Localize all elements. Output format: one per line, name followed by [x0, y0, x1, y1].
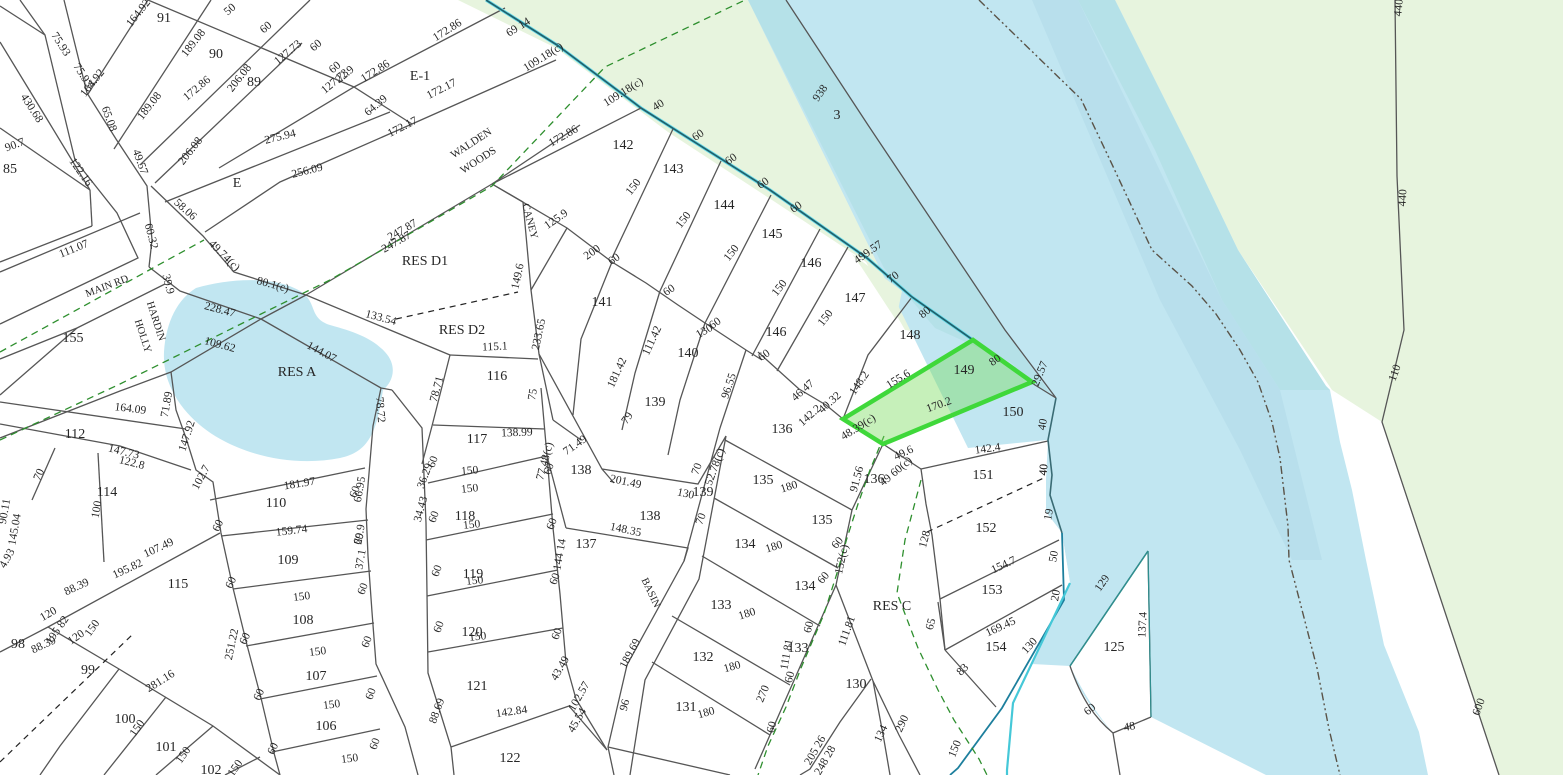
svg-text:139: 139	[693, 485, 714, 500]
svg-text:140: 140	[678, 346, 699, 361]
svg-text:155: 155	[63, 331, 84, 346]
svg-text:146: 146	[801, 256, 822, 271]
svg-text:150: 150	[322, 698, 341, 712]
svg-text:142: 142	[613, 138, 634, 153]
svg-text:149: 149	[954, 363, 975, 378]
svg-text:125: 125	[1104, 640, 1125, 655]
svg-text:139: 139	[645, 395, 666, 410]
svg-text:130: 130	[846, 677, 867, 692]
svg-text:40: 40	[1038, 463, 1051, 476]
svg-text:101: 101	[156, 740, 177, 755]
svg-text:115: 115	[168, 577, 188, 592]
svg-text:131: 131	[676, 700, 697, 715]
svg-text:133: 133	[711, 598, 732, 613]
svg-text:141: 141	[592, 295, 613, 310]
svg-text:50: 50	[1047, 550, 1061, 564]
svg-text:116: 116	[487, 369, 507, 384]
svg-text:150: 150	[292, 590, 311, 604]
svg-text:19: 19	[1042, 508, 1056, 522]
svg-text:138: 138	[571, 463, 592, 478]
svg-text:RES D2: RES D2	[439, 323, 485, 338]
svg-text:20: 20	[1049, 589, 1063, 603]
svg-text:145: 145	[762, 227, 783, 242]
svg-text:98: 98	[11, 637, 25, 652]
svg-text:150: 150	[465, 574, 484, 588]
svg-text:150: 150	[308, 645, 327, 659]
svg-text:138.99: 138.99	[501, 426, 533, 439]
svg-text:153: 153	[982, 583, 1003, 598]
svg-text:150: 150	[340, 752, 359, 766]
svg-text:40: 40	[1036, 418, 1050, 432]
svg-text:114: 114	[97, 485, 117, 500]
svg-text:121: 121	[467, 679, 488, 694]
svg-text:106: 106	[316, 719, 337, 734]
svg-text:91: 91	[157, 11, 171, 26]
svg-text:150: 150	[461, 464, 479, 477]
svg-text:102: 102	[201, 763, 222, 775]
svg-text:99: 99	[81, 663, 95, 678]
svg-text:135: 135	[753, 473, 774, 488]
svg-text:146: 146	[766, 325, 787, 340]
svg-text:154: 154	[986, 640, 1007, 655]
svg-text:RES C: RES C	[873, 599, 912, 614]
svg-text:107: 107	[306, 669, 327, 684]
svg-text:117: 117	[467, 432, 487, 447]
svg-text:440: 440	[1397, 189, 1410, 207]
svg-text:110: 110	[266, 496, 286, 511]
svg-text:138: 138	[640, 509, 661, 524]
svg-text:115.1: 115.1	[482, 340, 508, 353]
svg-text:85: 85	[3, 162, 17, 177]
svg-text:RES D1: RES D1	[402, 254, 448, 269]
svg-text:150: 150	[468, 630, 487, 644]
svg-text:RES A: RES A	[278, 365, 317, 380]
svg-text:143: 143	[663, 162, 684, 177]
svg-text:112: 112	[65, 427, 85, 442]
svg-text:137: 137	[576, 537, 597, 552]
svg-text:75: 75	[526, 388, 540, 402]
svg-text:148: 148	[900, 328, 921, 343]
svg-text:150: 150	[1003, 405, 1024, 420]
svg-text:150: 150	[460, 482, 479, 496]
svg-text:135: 135	[812, 513, 833, 528]
svg-text:147: 147	[845, 291, 866, 306]
svg-text:E: E	[233, 176, 242, 191]
svg-text:48: 48	[1123, 720, 1137, 734]
svg-text:78.72: 78.72	[373, 396, 387, 423]
svg-text:109: 109	[278, 553, 299, 568]
svg-text:152: 152	[976, 521, 997, 536]
svg-text:E-1: E-1	[410, 69, 430, 84]
svg-text:134: 134	[735, 537, 756, 552]
svg-text:134: 134	[795, 579, 816, 594]
svg-text:122: 122	[500, 751, 521, 766]
svg-text:108: 108	[293, 613, 314, 628]
svg-text:150: 150	[462, 518, 481, 532]
svg-text:132: 132	[693, 650, 714, 665]
svg-text:137.4: 137.4	[1136, 611, 1149, 638]
svg-text:440: 440	[1392, 0, 1405, 17]
svg-text:90: 90	[209, 47, 223, 62]
svg-text:3: 3	[834, 108, 841, 123]
svg-text:151: 151	[973, 468, 994, 483]
svg-text:89: 89	[247, 75, 261, 90]
svg-text:136: 136	[772, 422, 793, 437]
svg-text:144: 144	[714, 198, 735, 213]
